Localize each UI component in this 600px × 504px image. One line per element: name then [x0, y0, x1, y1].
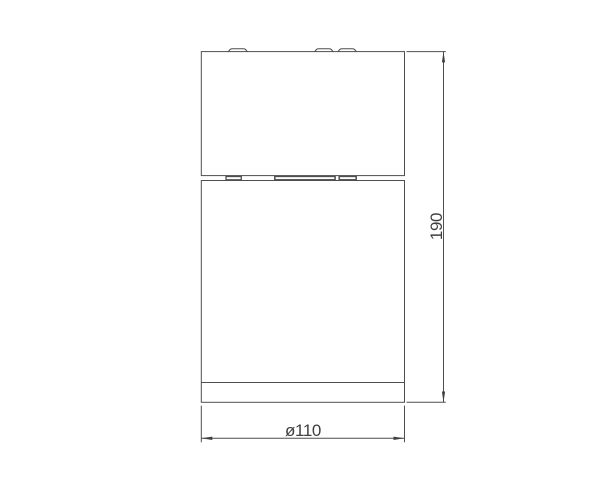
- svg-text:ø110: ø110: [285, 421, 321, 440]
- svg-text:190: 190: [427, 213, 446, 240]
